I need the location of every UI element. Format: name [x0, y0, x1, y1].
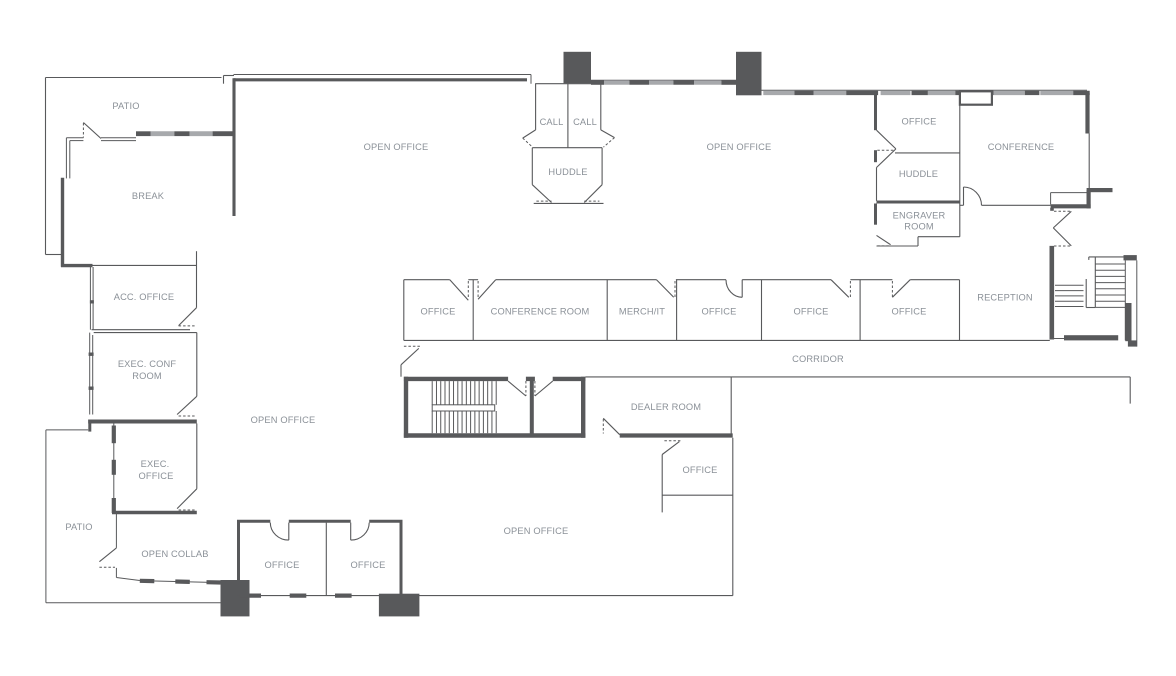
svg-text:OPEN OFFICE: OPEN OFFICE — [707, 142, 772, 152]
svg-text:CALL: CALL — [573, 117, 597, 127]
svg-text:OFFICE: OFFICE — [702, 307, 737, 317]
svg-text:BREAK: BREAK — [132, 191, 165, 201]
svg-text:CONFERENCE: CONFERENCE — [988, 142, 1055, 152]
svg-text:DEALER ROOM: DEALER ROOM — [631, 402, 701, 412]
svg-text:OFFICE: OFFICE — [351, 560, 386, 570]
svg-text:OFFICE: OFFICE — [902, 117, 937, 127]
svg-text:RECEPTION: RECEPTION — [977, 293, 1033, 303]
svg-text:ROOM: ROOM — [132, 371, 162, 381]
svg-text:HUDDLE: HUDDLE — [899, 169, 938, 179]
svg-text:OFFICE: OFFICE — [683, 465, 718, 475]
svg-text:OFFICE: OFFICE — [794, 307, 829, 317]
svg-text:ACC. OFFICE: ACC. OFFICE — [114, 292, 175, 302]
svg-text:PATIO: PATIO — [65, 522, 92, 532]
svg-text:EXEC.: EXEC. — [141, 459, 170, 469]
svg-text:OPEN OFFICE: OPEN OFFICE — [364, 142, 429, 152]
svg-text:EXEC. CONF: EXEC. CONF — [118, 359, 176, 369]
svg-text:PATIO: PATIO — [112, 101, 139, 111]
svg-text:OPEN OFFICE: OPEN OFFICE — [251, 415, 316, 425]
svg-text:ENGRAVER: ENGRAVER — [893, 211, 946, 221]
svg-text:OPEN OFFICE: OPEN OFFICE — [504, 526, 569, 536]
svg-text:ROOM: ROOM — [904, 222, 934, 232]
svg-text:CORRIDOR: CORRIDOR — [792, 354, 844, 364]
svg-text:OPEN COLLAB: OPEN COLLAB — [141, 549, 208, 559]
svg-text:OFFICE: OFFICE — [265, 560, 300, 570]
svg-text:CONFERENCE ROOM: CONFERENCE ROOM — [491, 307, 590, 317]
svg-text:OFFICE: OFFICE — [139, 471, 174, 481]
svg-text:HUDDLE: HUDDLE — [548, 167, 587, 177]
svg-text:OFFICE: OFFICE — [421, 307, 456, 317]
svg-text:OFFICE: OFFICE — [892, 307, 927, 317]
svg-text:CALL: CALL — [540, 117, 564, 127]
svg-text:MERCH/IT: MERCH/IT — [619, 307, 665, 317]
